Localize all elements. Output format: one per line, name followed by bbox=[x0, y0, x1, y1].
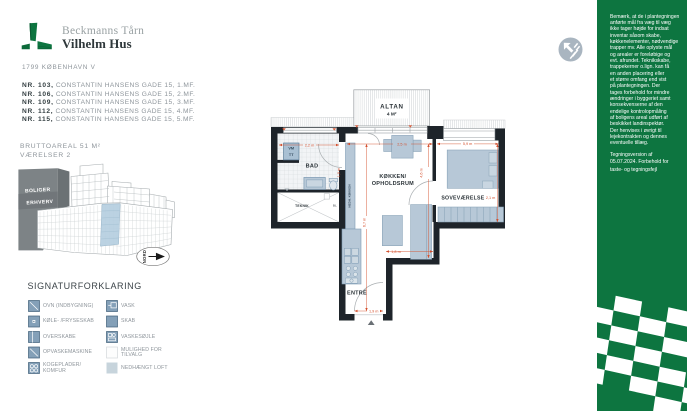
svg-text:ALTAN: ALTAN bbox=[380, 104, 404, 111]
svg-text:ENTRÉ: ENTRÉ bbox=[347, 289, 367, 297]
svg-text:2,2 m: 2,2 m bbox=[305, 143, 315, 147]
svg-text:2,1 m: 2,1 m bbox=[486, 196, 496, 200]
svg-text:1,9 m: 1,9 m bbox=[337, 168, 341, 178]
svg-text:SOVEVÆRELSE: SOVEVÆRELSE bbox=[441, 196, 484, 202]
svg-text:1,9 m: 1,9 m bbox=[369, 309, 379, 313]
svg-text:OPHOLDSRUM: OPHOLDSRUM bbox=[372, 181, 414, 187]
svg-text:NORD: NORD bbox=[142, 250, 147, 264]
svg-text:6,7 m: 6,7 m bbox=[362, 218, 366, 228]
svg-text:BAD: BAD bbox=[306, 164, 319, 170]
svg-text:2,5 m: 2,5 m bbox=[397, 142, 407, 146]
svg-text:BL: BL bbox=[333, 204, 337, 208]
svg-text:NEDH. KØKKEN: NEDH. KØKKEN bbox=[348, 184, 352, 207]
svg-text:TEKNIK: TEKNIK bbox=[295, 204, 309, 208]
svg-text:4,6 m: 4,6 m bbox=[419, 168, 423, 178]
svg-text:KØKKEN/: KØKKEN/ bbox=[379, 174, 406, 180]
svg-text:4 M²: 4 M² bbox=[387, 112, 397, 118]
svg-text:1,8 m: 1,8 m bbox=[391, 250, 401, 254]
svg-text:VM: VM bbox=[288, 147, 294, 151]
svg-text:TT: TT bbox=[289, 153, 294, 157]
svg-text:5,9 m: 5,9 m bbox=[463, 142, 473, 146]
